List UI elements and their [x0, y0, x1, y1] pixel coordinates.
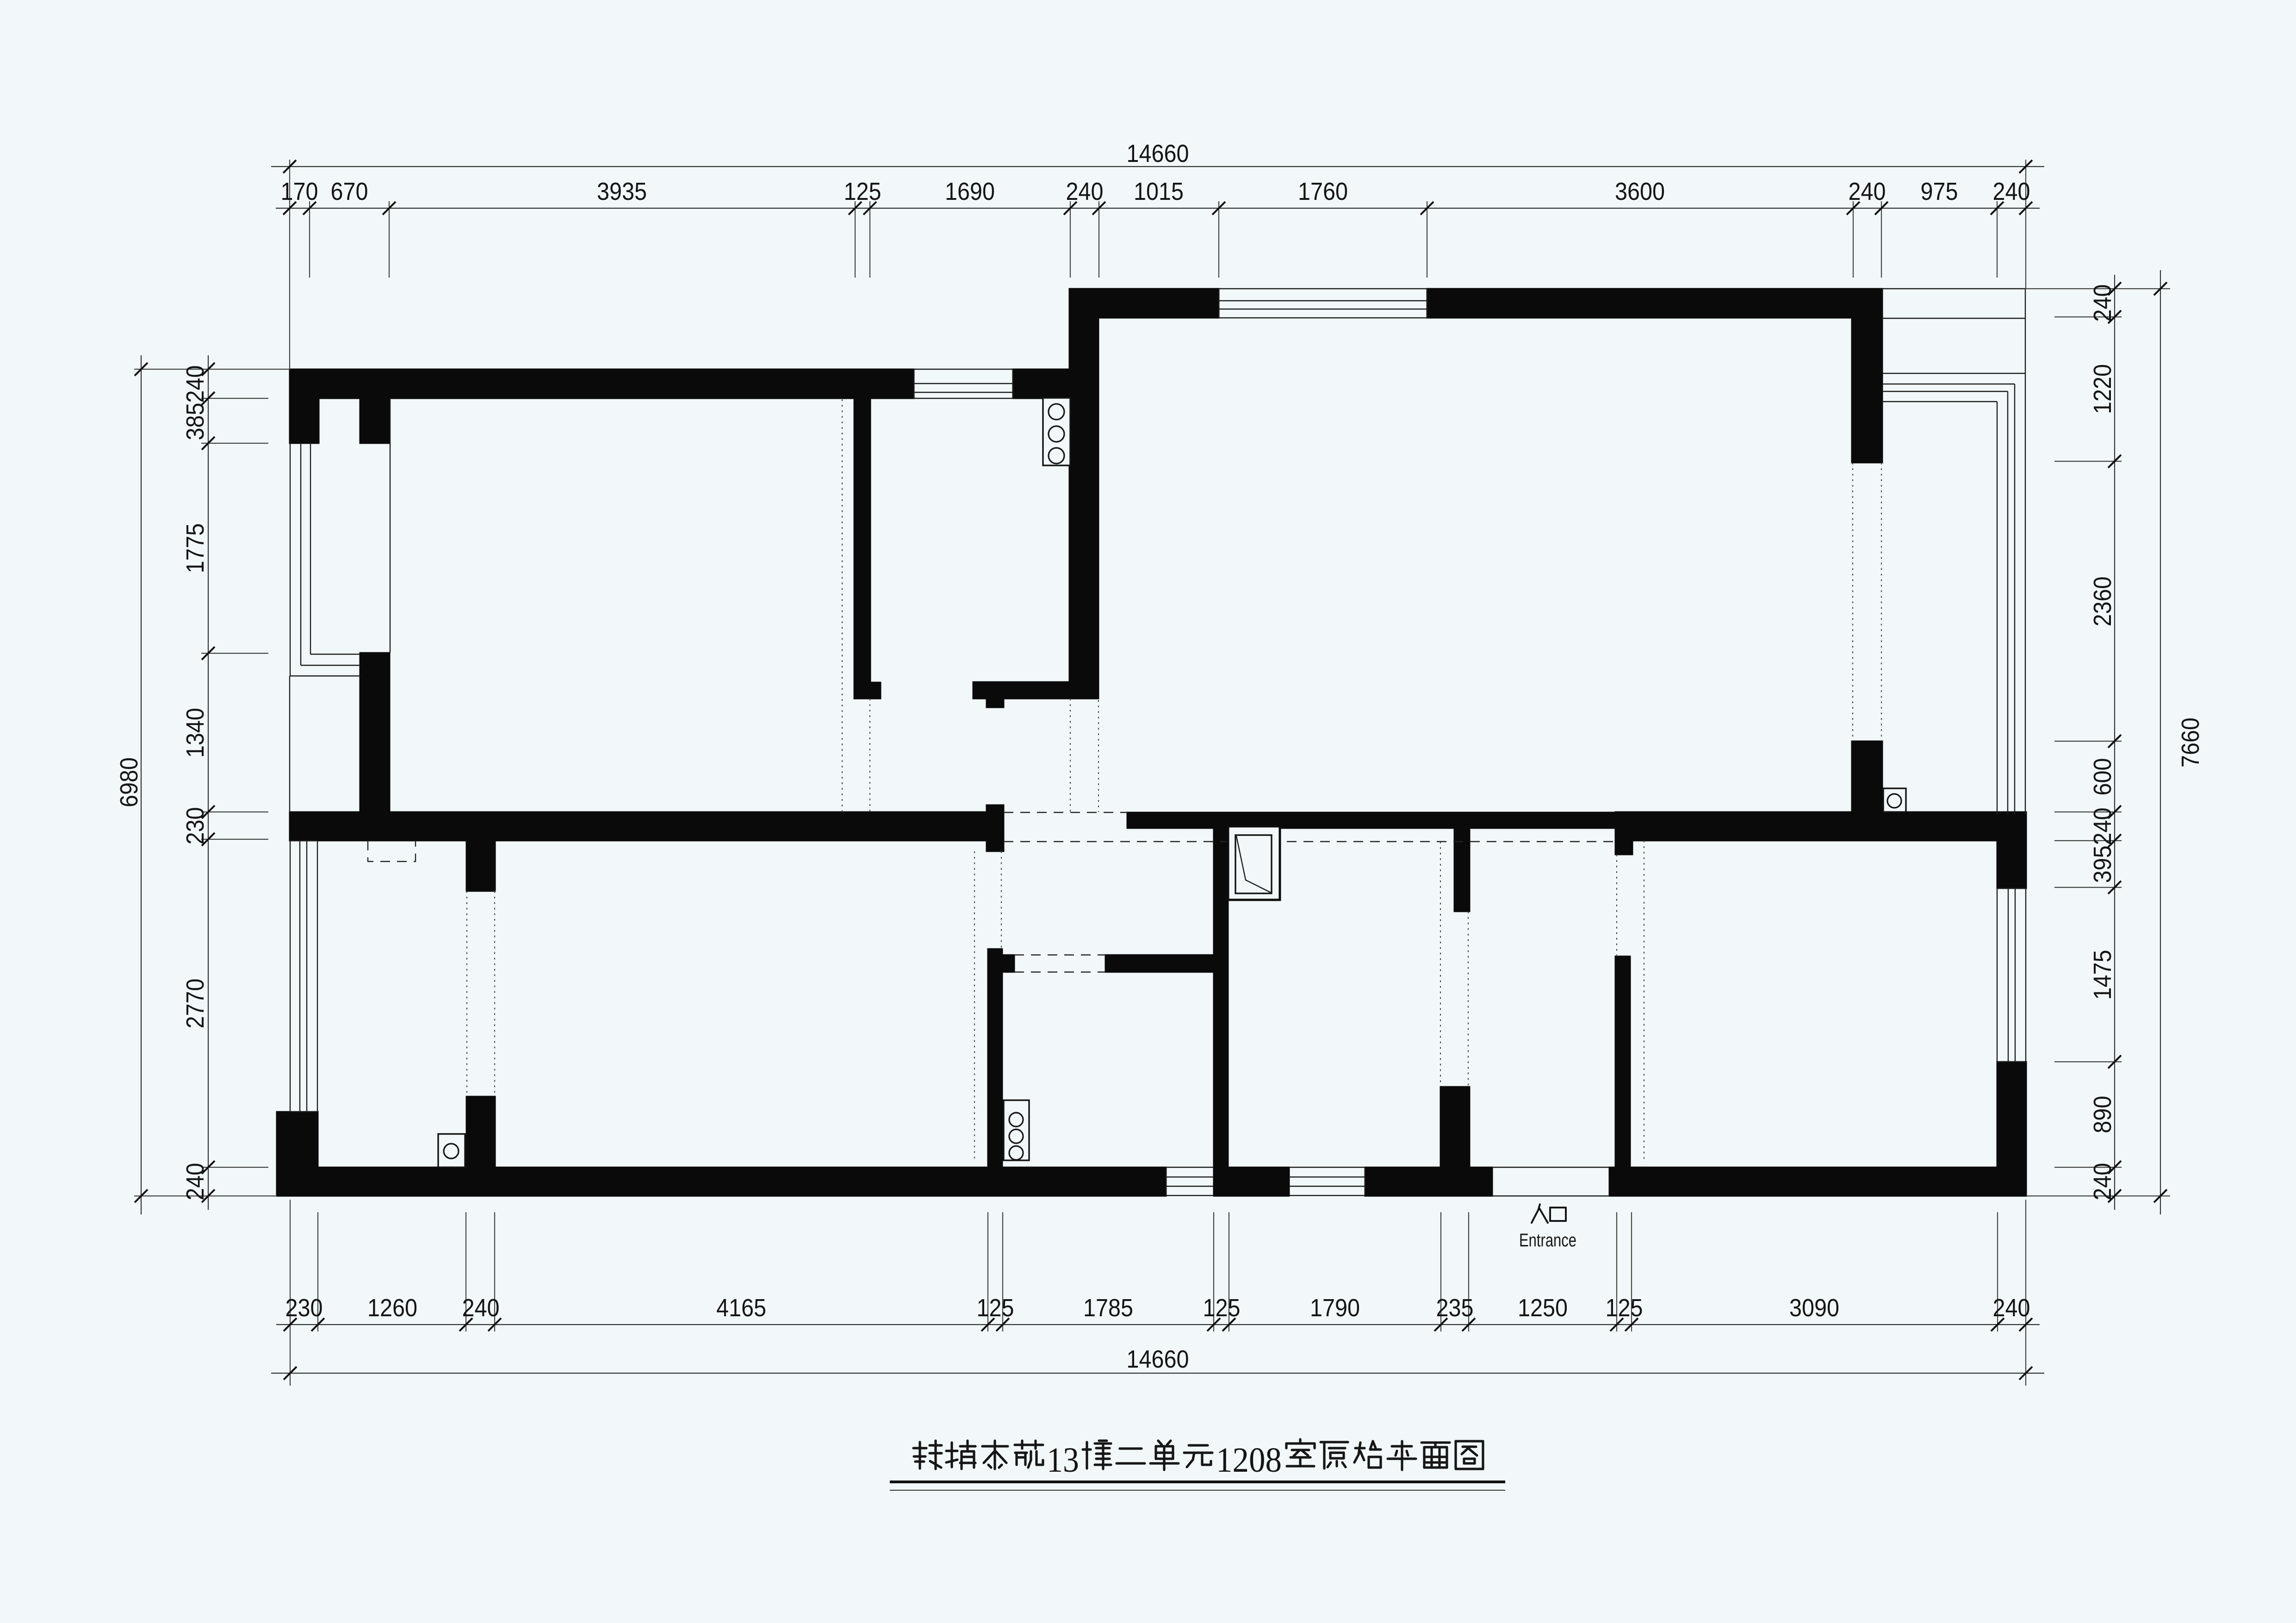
svg-text:125: 125: [1203, 1294, 1241, 1322]
svg-text:240: 240: [1849, 178, 1886, 205]
svg-text:1475: 1475: [2089, 950, 2116, 1000]
svg-text:125: 125: [1606, 1294, 1643, 1322]
svg-text:125: 125: [977, 1294, 1014, 1322]
svg-text:230: 230: [285, 1294, 323, 1322]
svg-text:14660: 14660: [1127, 140, 1189, 167]
svg-text:890: 890: [2089, 1096, 2116, 1134]
svg-text:1220: 1220: [2089, 364, 2116, 414]
svg-text:3600: 3600: [1615, 178, 1665, 205]
svg-text:1260: 1260: [367, 1294, 417, 1322]
svg-text:385: 385: [181, 403, 209, 440]
svg-text:1690: 1690: [945, 178, 995, 205]
svg-text:4165: 4165: [716, 1294, 766, 1322]
svg-text:240: 240: [1993, 1294, 2030, 1322]
svg-text:240: 240: [2089, 285, 2116, 322]
svg-text:13: 13: [1047, 1441, 1079, 1480]
svg-text:240: 240: [2089, 1163, 2116, 1201]
svg-text:7660: 7660: [2177, 718, 2204, 768]
svg-text:240: 240: [181, 1163, 209, 1201]
svg-text:2770: 2770: [181, 979, 209, 1028]
svg-text:1790: 1790: [1310, 1294, 1360, 1322]
svg-text:1208: 1208: [1216, 1441, 1282, 1480]
svg-text:235: 235: [1436, 1294, 1474, 1322]
svg-text:240: 240: [1993, 178, 2030, 205]
svg-text:170: 170: [281, 178, 318, 205]
svg-text:975: 975: [1921, 178, 1958, 205]
svg-text:240: 240: [1066, 178, 1104, 205]
svg-text:1340: 1340: [181, 708, 209, 758]
svg-text:3935: 3935: [597, 178, 647, 205]
svg-text:14660: 14660: [1127, 1345, 1189, 1373]
svg-text:600: 600: [2089, 758, 2116, 796]
svg-text:240: 240: [462, 1294, 500, 1322]
svg-text:6980: 6980: [115, 757, 143, 807]
svg-text:125: 125: [844, 178, 881, 205]
svg-text:1775: 1775: [181, 523, 209, 573]
svg-text:1250: 1250: [1518, 1294, 1568, 1322]
svg-text:670: 670: [331, 178, 368, 205]
svg-text:1760: 1760: [1298, 178, 1348, 205]
svg-text:1015: 1015: [1134, 178, 1184, 205]
svg-text:2360: 2360: [2089, 576, 2116, 626]
svg-text:3090: 3090: [1789, 1294, 1839, 1322]
svg-text:240: 240: [2089, 808, 2116, 845]
svg-text:240: 240: [181, 365, 209, 403]
svg-text:Entrance: Entrance: [1519, 1230, 1576, 1251]
svg-text:230: 230: [181, 807, 209, 845]
svg-text:395: 395: [2089, 846, 2116, 883]
svg-text:1785: 1785: [1083, 1294, 1133, 1322]
